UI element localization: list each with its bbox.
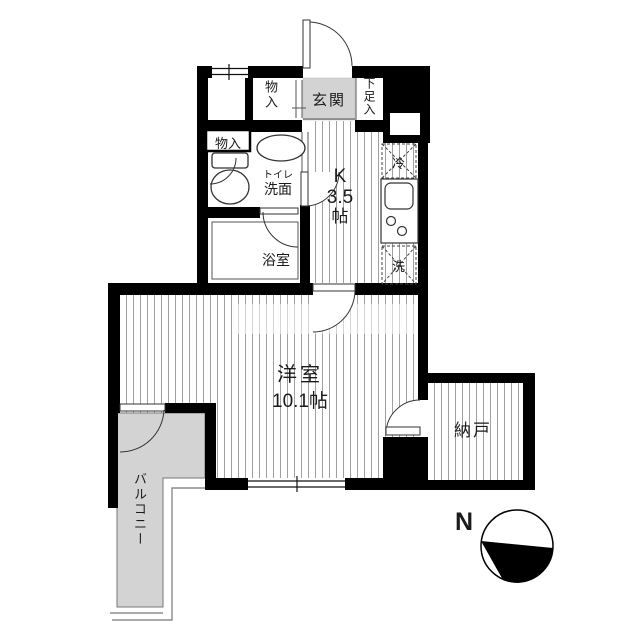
burner (387, 217, 396, 226)
kitchen-label-line1: K (312, 167, 368, 188)
entrance-door (303, 20, 352, 68)
entrance-label: 玄関 (303, 89, 355, 110)
washer-label: 洗 (392, 256, 405, 275)
bathroom-label: 浴室 (250, 250, 302, 270)
kitchen-label-line3: 帖 (312, 208, 368, 226)
storage-left-label: 物入 (208, 133, 248, 152)
bathroom-door (260, 208, 298, 247)
balcony-label: バルコニー (130, 472, 149, 547)
kitchen-sink (385, 183, 413, 209)
pipe-shaft (390, 113, 420, 135)
storage-room-label: 納戸 (444, 416, 502, 441)
kitchen-label: K 3.5 帖 (312, 167, 368, 226)
washbasin (257, 135, 305, 161)
storage-top-label: 物入 (261, 80, 280, 110)
refrigerator-label: 冷 (392, 153, 405, 172)
shoe-storage-label: 下足入 (361, 77, 378, 116)
western-room-size: 10.1帖 (255, 386, 345, 413)
compass-north-label: N (455, 508, 473, 537)
top-window (212, 64, 248, 80)
western-room-label: 洋室 (262, 358, 338, 387)
burner (398, 227, 407, 236)
washroom-label: 洗面 (252, 179, 304, 199)
toilet (211, 153, 249, 204)
floor-plan: 物入 玄関 下足入 物入 トイレ 洗面 浴室 K 3.5 帖 冷 洗 洋室 10… (0, 0, 640, 640)
kitchen-counter (381, 179, 418, 243)
kitchen-label-line2: 3.5 (312, 188, 368, 209)
bottom-window (248, 476, 345, 492)
compass (481, 510, 553, 583)
